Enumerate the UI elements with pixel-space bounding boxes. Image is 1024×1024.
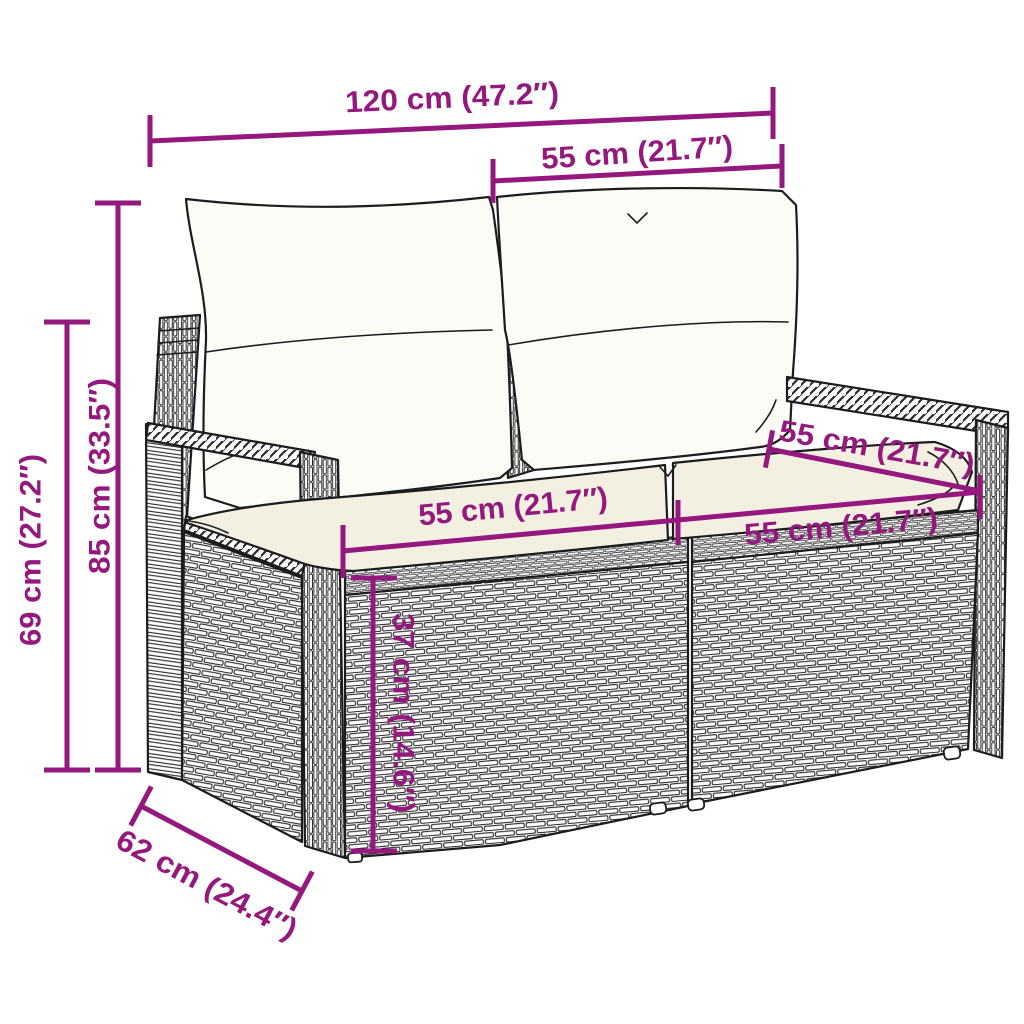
dim-armrest-height-label: 69 cm (27.2″) [15,454,48,646]
sofa-foot [649,802,666,815]
base-module-right [692,533,978,804]
dim-total-width-label: 120 cm (47.2″) [344,77,559,120]
dimension-diagram: 120 cm (47.2″) 55 cm (21.7″) 85 cm (33.5… [0,0,1024,1024]
left-arm-outer-upright [146,424,182,780]
sofa-dimension-drawing: 120 cm (47.2″) 55 cm (21.7″) 85 cm (33.5… [0,0,1024,1024]
left-back-cushion [186,197,512,508]
dim-base-height-label: 37 cm (14.6″) [387,613,420,813]
right-back-cushion [497,188,797,470]
dim-total-height-label: 85 cm (33.5″) [84,378,117,574]
left-arm-side-panel [182,532,302,842]
dim-total-height: 85 cm (33.5″) [84,203,142,770]
right-arm-post [974,420,1008,758]
sofa-foot [943,746,961,760]
base-module-seam [688,540,692,806]
dim-armrest-height: 69 cm (27.2″) [15,322,91,770]
sofa-foot [687,798,704,811]
sofa-foot [348,853,363,863]
